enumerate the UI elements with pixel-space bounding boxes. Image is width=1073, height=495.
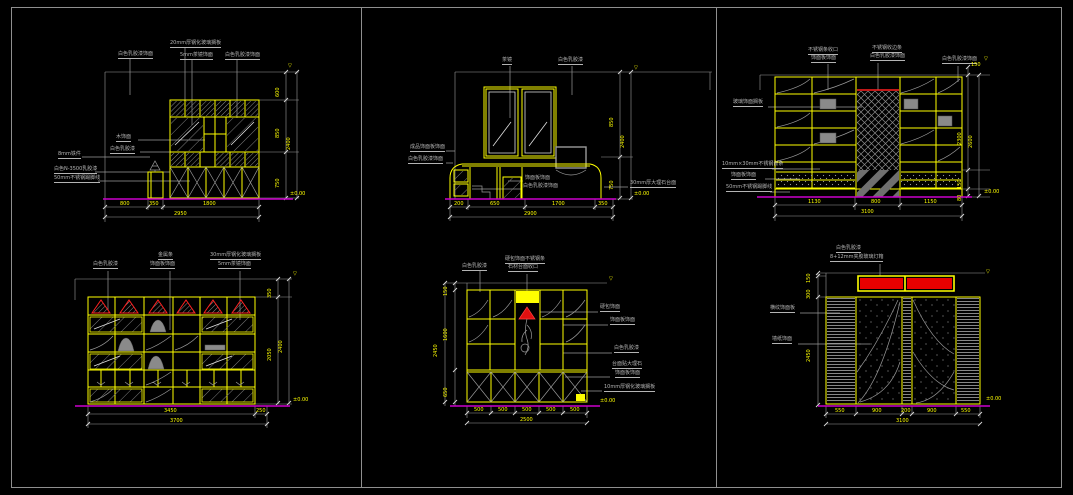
annotation: 50mm不锈钢踢脚线 bbox=[726, 185, 772, 192]
annotation: 硬包饰面 bbox=[600, 305, 620, 312]
annotation: 饰面板饰面 bbox=[525, 176, 550, 181]
dim-total: 2450 bbox=[434, 344, 439, 357]
table-lamp bbox=[150, 161, 160, 172]
dim-value: 500 bbox=[498, 408, 508, 413]
louver-right bbox=[957, 298, 979, 403]
mural-left bbox=[857, 298, 901, 403]
annotation: 白色N-3500乳胶漆 bbox=[54, 167, 97, 174]
dim-value: 550 bbox=[835, 409, 845, 414]
annotation: 金属条 bbox=[158, 253, 173, 260]
annotation: 白色乳胶漆饰面 bbox=[870, 54, 905, 61]
annotation: 饰面板饰面 bbox=[811, 56, 836, 63]
annotation: 饰面板饰面 bbox=[610, 318, 635, 325]
dim-value: 1800 bbox=[203, 202, 216, 207]
yellow-plinth-block bbox=[576, 394, 585, 401]
dim-total: 2500 bbox=[520, 418, 533, 423]
annotation: 茶镜 bbox=[502, 58, 512, 65]
dim-value: 1600 bbox=[444, 328, 449, 341]
tv-cabinet bbox=[450, 164, 601, 199]
dim-total: 2400 bbox=[621, 135, 626, 148]
ceiling-flag: ▽ bbox=[986, 270, 990, 275]
dim-value: 150 bbox=[444, 286, 449, 296]
dim-total: 2950 bbox=[174, 212, 187, 217]
plate-triangles bbox=[92, 300, 250, 313]
dim-total: 2400 bbox=[287, 137, 292, 150]
dim-value: 550 bbox=[961, 409, 971, 414]
display-grid bbox=[88, 297, 255, 404]
ceiling-flag: ▽ bbox=[288, 64, 292, 69]
floor-level-mark: ±0.00 bbox=[634, 192, 649, 197]
dim-value: 800 bbox=[120, 202, 130, 207]
tv-outline bbox=[556, 147, 586, 168]
annotation: 5mm茶镜饰面 bbox=[218, 262, 251, 269]
panel-feature-wall bbox=[798, 264, 990, 426]
dim-value: 2450 bbox=[807, 349, 812, 362]
dim-value: 150 bbox=[971, 63, 981, 68]
side-table bbox=[148, 172, 163, 198]
annotation: 白色乳胶漆 bbox=[110, 147, 135, 154]
dim-value: 900 bbox=[872, 409, 882, 414]
dim-value: 150 bbox=[958, 179, 963, 189]
annotation: 石材台面收口 bbox=[508, 265, 538, 272]
annotation: 饰面板饰面 bbox=[150, 262, 175, 269]
panel-wardrobe-wall bbox=[757, 63, 990, 221]
annotation: 白色乳胶漆 bbox=[462, 264, 487, 271]
dim-value: 200 bbox=[454, 202, 464, 207]
ceiling-flag: ▽ bbox=[609, 277, 613, 282]
door-cross-decor bbox=[170, 167, 259, 198]
annotation: 白色乳胶漆 bbox=[614, 346, 639, 353]
floor-level-mark: ±0.00 bbox=[986, 397, 1001, 402]
ceiling-flag: ▽ bbox=[293, 272, 297, 277]
annotation: 不锈钢收边条 bbox=[872, 46, 902, 53]
dim-value: 500 bbox=[546, 408, 556, 413]
wardrobe-hatch bbox=[857, 91, 899, 170]
annotation: 10mm×30mm不锈钢嵌条 bbox=[722, 162, 783, 169]
annotation: 白色乳胶漆饰面 bbox=[408, 157, 443, 164]
floor-level-mark: ±0.00 bbox=[290, 192, 305, 197]
glass-panels bbox=[90, 317, 253, 402]
lightbox-red-right bbox=[907, 278, 952, 289]
floor-level-mark: ±0.00 bbox=[293, 398, 308, 403]
cad-canvas: 白色乳胶漆饰面 20mm厚钢化玻璃搁板 5mm茶镜饰面 白色乳胶漆饰面 木饰面 … bbox=[0, 0, 1073, 495]
ceiling-flag: ▽ bbox=[634, 66, 638, 71]
panel-tv-wall bbox=[445, 66, 712, 221]
lightbox-red-left bbox=[860, 278, 903, 289]
niche-header bbox=[516, 291, 539, 303]
dim-value: 350 bbox=[268, 288, 273, 298]
annotation: 墙纸饰面 bbox=[772, 337, 792, 344]
dim-value: 600 bbox=[276, 87, 281, 97]
dim-value: 500 bbox=[570, 408, 580, 413]
annotation: 50mm不锈钢踢脚线 bbox=[54, 176, 100, 183]
annotation: 白色乳胶漆饰面 bbox=[523, 184, 558, 189]
panel-display-shelf bbox=[75, 271, 292, 428]
annotation: 横纹饰面板 bbox=[770, 306, 795, 313]
annotation: 30mm厚大理石台面 bbox=[630, 181, 676, 188]
dim-value: 250 bbox=[256, 409, 266, 414]
louver-left bbox=[827, 298, 855, 403]
annotation: 硬包饰面不锈钢条 bbox=[505, 257, 545, 264]
annotation: 20mm厚钢化玻璃搁板 bbox=[170, 41, 221, 48]
dim-value: 1150 bbox=[924, 200, 937, 205]
annotation: 饰面板饰面 bbox=[731, 173, 756, 180]
annotation: 不锈钢条收口 bbox=[808, 48, 838, 55]
linework-layer bbox=[0, 0, 1073, 495]
dim-value: 900 bbox=[927, 409, 937, 414]
annotation: 8mm铁件 bbox=[58, 152, 81, 159]
annotation: 玻璃饰面搁板 bbox=[733, 100, 763, 107]
dim-total: 2600 bbox=[969, 135, 974, 148]
annotation: 白色乳胶漆 bbox=[836, 246, 861, 253]
glass-doors bbox=[484, 87, 556, 158]
dim-total: 2400 bbox=[279, 340, 284, 353]
dim-total: 3100 bbox=[861, 210, 874, 215]
wardrobe-base-bands bbox=[857, 170, 899, 197]
annotation: 5mm茶镜饰面 bbox=[180, 53, 213, 60]
dim-value: 500 bbox=[474, 408, 484, 413]
dim-value: 750 bbox=[610, 180, 615, 190]
panel-niche-cabinet bbox=[443, 271, 612, 425]
annotation: 木饰面 bbox=[116, 135, 131, 142]
door-crosses bbox=[467, 372, 587, 402]
dim-value: 850 bbox=[610, 117, 615, 127]
dim-value: 300 bbox=[807, 289, 812, 299]
dim-value: 350 bbox=[598, 202, 608, 207]
dim-value: 3450 bbox=[164, 409, 177, 414]
annotation: 白色乳胶漆 bbox=[558, 58, 583, 65]
annotation: 30mm厚钢化玻璃搁板 bbox=[210, 253, 261, 260]
dim-total: 2900 bbox=[524, 212, 537, 217]
dim-value: 2050 bbox=[268, 348, 273, 361]
dim-value: 800 bbox=[871, 200, 881, 205]
center-strip bbox=[903, 298, 911, 403]
annotation: 10mm厚钢化玻璃搁板 bbox=[604, 385, 655, 392]
annotation: 白色乳胶漆 bbox=[93, 262, 118, 269]
dim-value: 850 bbox=[276, 128, 281, 138]
annotation: 成品饰面板饰面 bbox=[410, 145, 445, 152]
dim-value: 1700 bbox=[552, 202, 565, 207]
dim-value: 80 bbox=[958, 195, 963, 201]
dim-value: 650 bbox=[444, 387, 449, 397]
dim-value: 500 bbox=[522, 408, 532, 413]
annotation: 饰面板饰面 bbox=[615, 371, 640, 378]
panel-bookshelf-a bbox=[82, 47, 299, 222]
dim-value: 350 bbox=[149, 202, 159, 207]
ceiling-flag: ▽ bbox=[984, 57, 988, 62]
annotation: 白色乳胶漆饰面 bbox=[118, 52, 153, 59]
dim-value: 1130 bbox=[808, 200, 821, 205]
dim-value: 150 bbox=[807, 273, 812, 283]
red-vase bbox=[519, 307, 535, 319]
floor-level-mark: ±0.00 bbox=[984, 190, 999, 195]
annotation: 白色乳胶漆饰面 bbox=[225, 53, 260, 60]
dim-value: 750 bbox=[276, 178, 281, 188]
dim-value: 2300 bbox=[958, 132, 963, 145]
annotation: 8+12mm夹胶玻璃灯箱 bbox=[830, 255, 883, 262]
cell-curves bbox=[469, 300, 585, 342]
dim-total: 3100 bbox=[896, 419, 909, 424]
dim-total: 3700 bbox=[170, 419, 183, 424]
niche-plant bbox=[522, 319, 532, 355]
dim-value: 200 bbox=[901, 409, 911, 414]
annotation: 台面贴大理石 bbox=[612, 362, 642, 369]
floor-level-mark: ±0.00 bbox=[600, 399, 615, 404]
dim-value: 650 bbox=[490, 202, 500, 207]
